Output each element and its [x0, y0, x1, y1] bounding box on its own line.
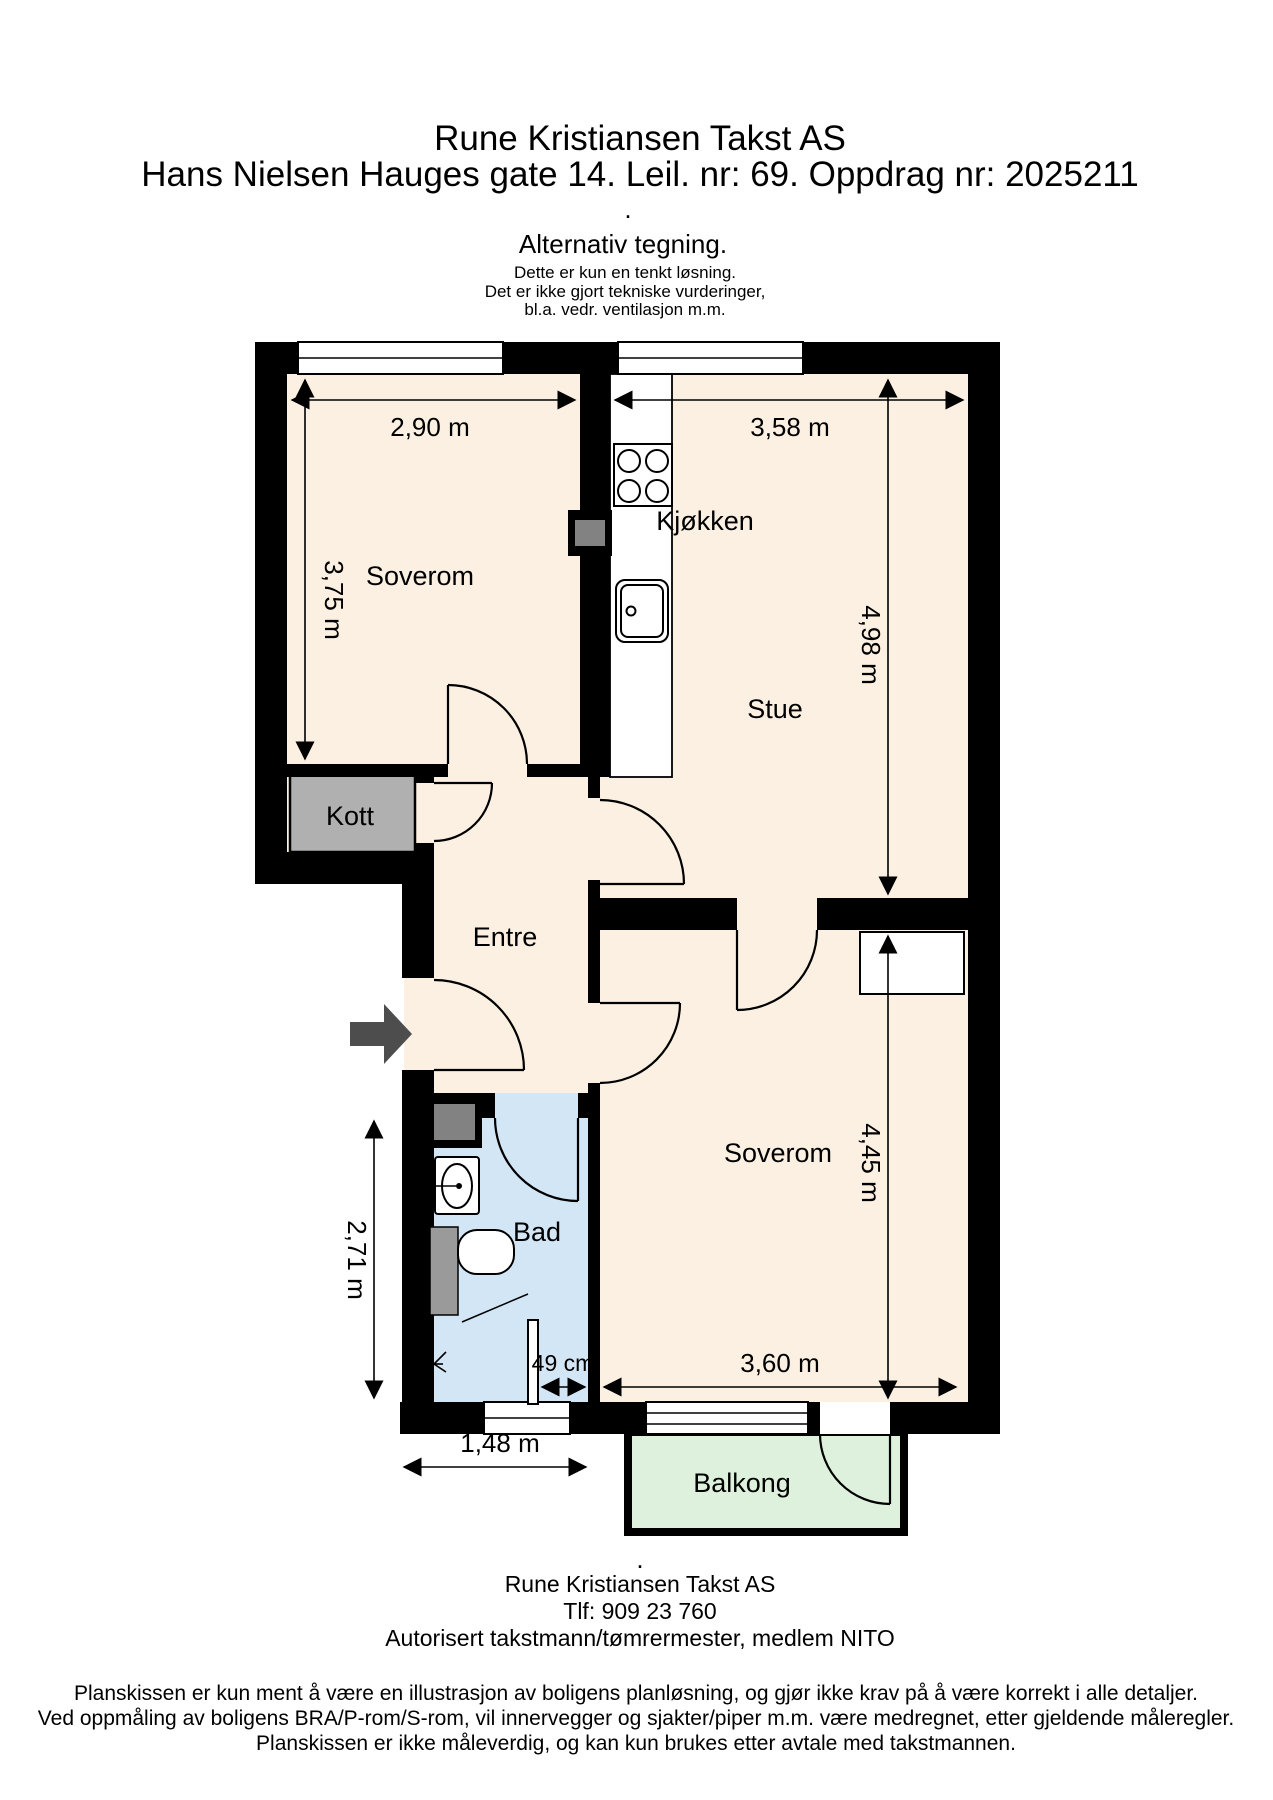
- alternative-drawing-title: Alternativ tegning.: [519, 229, 727, 259]
- footer-dot: .: [636, 1544, 643, 1574]
- disclaimer-line-2: Ved oppmåling av boligens BRA/P-rom/S-ro…: [38, 1707, 1234, 1730]
- kitchen-shaft-vent: [575, 520, 605, 546]
- note-line-2: Det er ikke gjort tekniske vurderinger,: [485, 282, 766, 301]
- label-soverom1: Soverom: [366, 561, 474, 591]
- company-title: Rune Kristiansen Takst AS: [434, 119, 846, 158]
- toilet-icon: [458, 1230, 514, 1274]
- note-line-1: Dette er kun en tenkt løsning.: [514, 263, 736, 282]
- balcony-door-opening: [820, 1402, 890, 1434]
- label-bad: Bad: [513, 1217, 561, 1247]
- bathroom-door-opening: [495, 1093, 578, 1118]
- entrance-opening-floor: [404, 978, 434, 1070]
- kitchen-counter: [610, 374, 672, 777]
- label-stue: Stue: [747, 694, 803, 724]
- window-soverom2: [646, 1402, 808, 1434]
- entrance-arrow-icon: [350, 1004, 412, 1064]
- dim-soverom1-height: 3,75 m: [319, 560, 349, 640]
- wardrobe: [860, 932, 964, 994]
- address-line: Hans Nielsen Hauges gate 14. Leil. nr: 6…: [141, 155, 1139, 194]
- dim-soverom1-width: 2,90 m: [390, 412, 470, 442]
- separator-dot: .: [624, 194, 631, 224]
- dim-kjokken-width: 3,58 m: [750, 412, 830, 442]
- footer: . Rune Kristiansen Takst AS Tlf: 909 23 …: [385, 1544, 895, 1651]
- dim-stue-height: 4,98 m: [856, 605, 886, 685]
- toilet-cistern: [430, 1227, 458, 1315]
- header: Rune Kristiansen Takst AS Hans Nielsen H…: [141, 119, 1139, 319]
- label-balkong: Balkong: [693, 1468, 791, 1498]
- label-kjokken: Kjøkken: [656, 506, 754, 536]
- bathroom-shaft-vent: [434, 1104, 475, 1140]
- label-soverom2: Soverom: [724, 1138, 832, 1168]
- disclaimer-line-1: Planskissen er kun ment å være en illust…: [74, 1682, 1198, 1705]
- disclaimer-line-3: Planskissen er ikke måleverdig, og kan k…: [256, 1732, 1016, 1755]
- dim-bad-height: 2,71 m: [342, 1220, 372, 1300]
- dim-shower-gap: 49 cm: [532, 1350, 595, 1376]
- label-entre: Entre: [473, 922, 538, 952]
- floor-plan-drawing: Rune Kristiansen Takst AS Hans Nielsen H…: [0, 0, 1273, 1800]
- dim-bad-width: 1,48 m: [460, 1428, 540, 1458]
- note-line-3: bl.a. vedr. ventilasjon m.m.: [524, 300, 725, 319]
- floor-plan-page: Rune Kristiansen Takst AS Hans Nielsen H…: [0, 0, 1273, 1800]
- label-kott: Kott: [326, 801, 375, 831]
- footer-credentials: Autorisert takstmann/tømrermester, medle…: [385, 1625, 895, 1651]
- dim-soverom2-height: 4,45 m: [856, 1123, 886, 1203]
- disclaimer: Planskissen er kun ment å være en illust…: [38, 1682, 1234, 1755]
- dim-soverom2-width: 3,60 m: [740, 1348, 820, 1378]
- footer-phone: Tlf: 909 23 760: [563, 1598, 716, 1624]
- footer-company: Rune Kristiansen Takst AS: [505, 1571, 776, 1597]
